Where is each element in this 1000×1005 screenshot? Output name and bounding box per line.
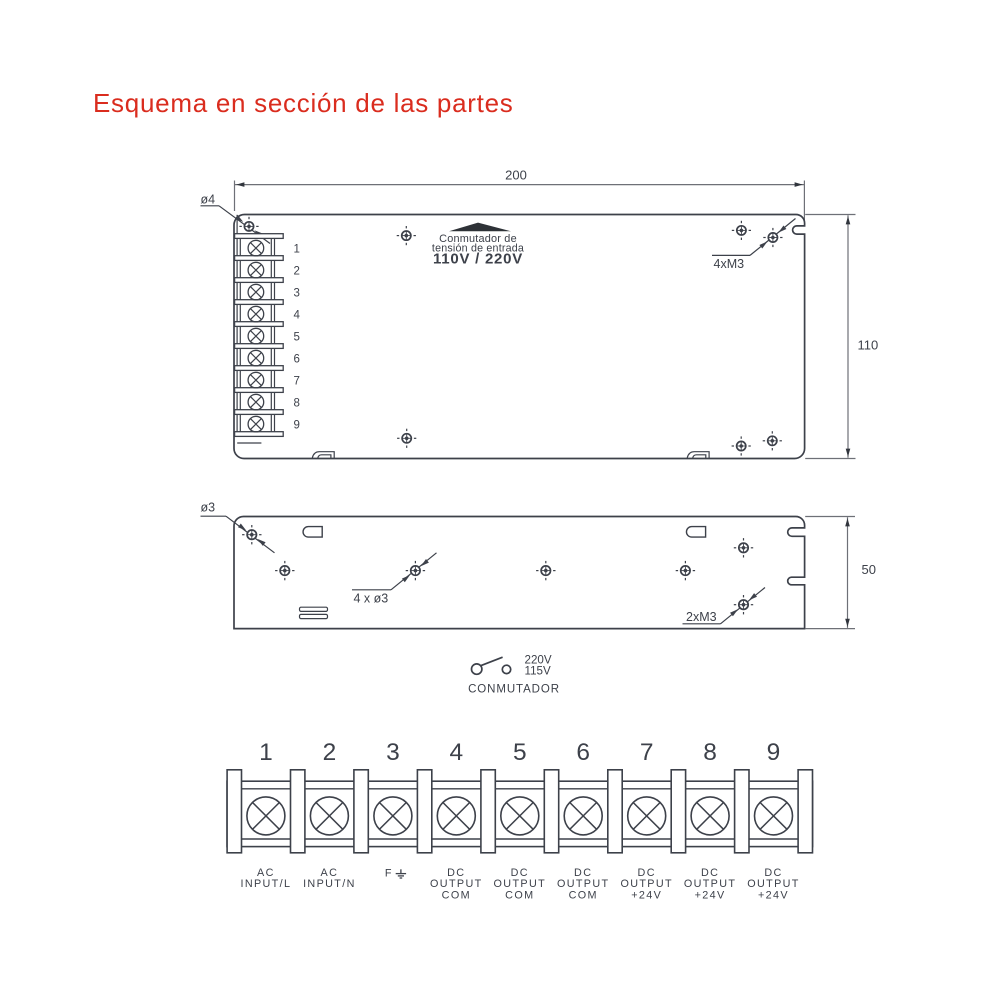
svg-text:8: 8: [294, 397, 300, 409]
svg-text:OUTPUT: OUTPUT: [747, 878, 799, 890]
svg-text:6: 6: [294, 353, 300, 365]
svg-text:+24V: +24V: [758, 889, 789, 901]
svg-text:DC: DC: [701, 867, 719, 879]
svg-text:DC: DC: [511, 867, 529, 879]
svg-text:9: 9: [294, 419, 300, 431]
svg-text:4: 4: [449, 739, 463, 766]
svg-text:OUTPUT: OUTPUT: [620, 878, 672, 890]
svg-text:115V: 115V: [525, 664, 551, 677]
svg-text:6: 6: [576, 739, 590, 766]
svg-text:INPUT/L: INPUT/L: [240, 878, 291, 890]
svg-text:4xM3: 4xM3: [714, 257, 745, 271]
svg-text:OUTPUT: OUTPUT: [557, 878, 609, 890]
svg-text:OUTPUT: OUTPUT: [684, 878, 736, 890]
svg-text:DC: DC: [638, 867, 656, 879]
svg-text:5: 5: [513, 739, 527, 766]
svg-text:ø4: ø4: [201, 193, 216, 207]
svg-text:COM: COM: [505, 889, 534, 901]
svg-text:3: 3: [386, 739, 400, 766]
svg-text:AC: AC: [257, 867, 275, 879]
svg-text:200: 200: [505, 168, 527, 183]
svg-text:+24V: +24V: [631, 889, 662, 901]
svg-text:9: 9: [767, 739, 781, 766]
svg-text:2: 2: [294, 265, 300, 277]
svg-text:1: 1: [294, 243, 300, 255]
svg-text:DC: DC: [764, 867, 782, 879]
svg-text:110: 110: [858, 338, 879, 353]
svg-text:ø3: ø3: [201, 501, 216, 515]
svg-text:DC: DC: [447, 867, 465, 879]
svg-text:50: 50: [862, 562, 876, 577]
svg-text:4 x ø3: 4 x ø3: [354, 591, 389, 605]
svg-text:OUTPUT: OUTPUT: [430, 878, 482, 890]
svg-text:OUTPUT: OUTPUT: [494, 878, 546, 890]
svg-text:F: F: [385, 868, 392, 880]
svg-text:CONMUTADOR: CONMUTADOR: [468, 684, 560, 696]
svg-text:COM: COM: [569, 889, 598, 901]
svg-text:5: 5: [294, 331, 300, 343]
svg-text:110V / 220V: 110V / 220V: [433, 251, 523, 268]
svg-text:2: 2: [323, 739, 337, 766]
svg-text:4: 4: [294, 309, 301, 321]
svg-text:AC: AC: [321, 867, 339, 879]
svg-text:INPUT/N: INPUT/N: [303, 878, 356, 890]
svg-text:COM: COM: [442, 889, 471, 901]
svg-text:7: 7: [294, 375, 300, 387]
svg-text:2xM3: 2xM3: [686, 610, 717, 624]
svg-text:7: 7: [640, 739, 654, 766]
svg-text:Esquema en sección de las part: Esquema en sección de las partes: [93, 88, 514, 118]
svg-text:+24V: +24V: [695, 889, 726, 901]
svg-text:3: 3: [294, 287, 300, 299]
svg-text:1: 1: [259, 739, 273, 766]
svg-text:DC: DC: [574, 867, 592, 879]
svg-text:8: 8: [703, 739, 717, 766]
